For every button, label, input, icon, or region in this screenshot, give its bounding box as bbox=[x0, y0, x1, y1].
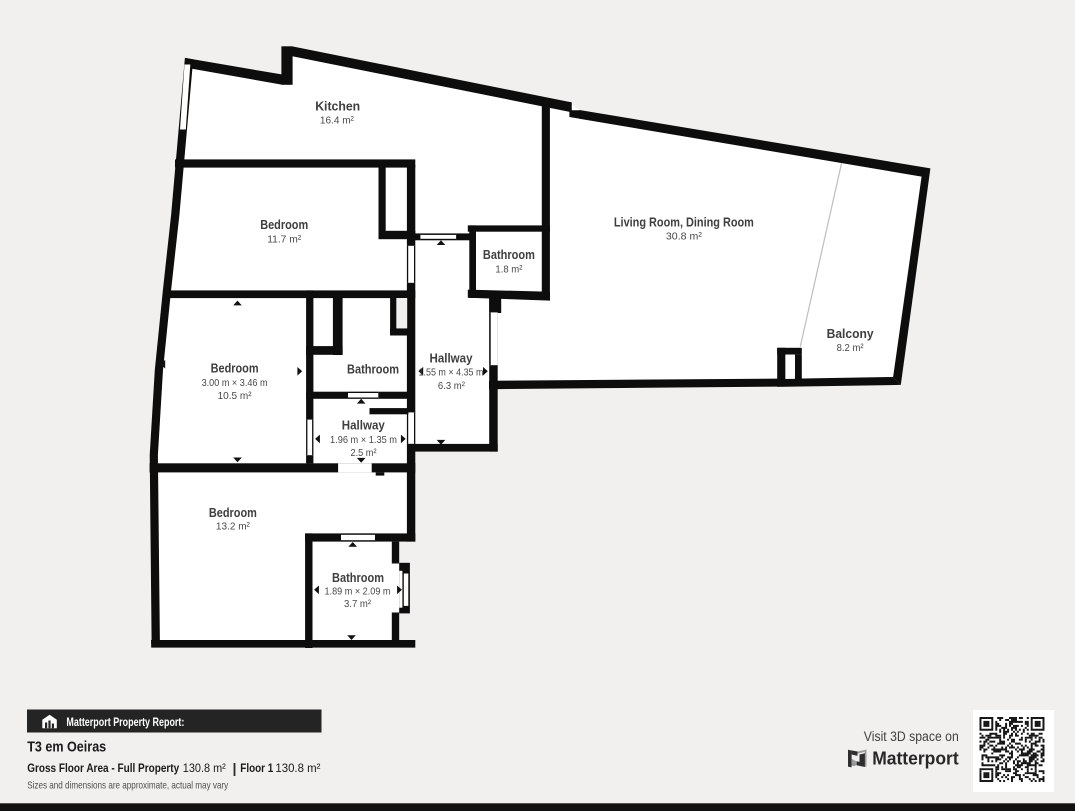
svg-text:1.8 m²: 1.8 m² bbox=[495, 264, 522, 276]
svg-text:2.5 m²: 2.5 m² bbox=[351, 447, 377, 459]
svg-text:Matterport: Matterport bbox=[872, 747, 959, 768]
svg-text:Bathroom: Bathroom bbox=[347, 362, 399, 376]
svg-text:13.2 m²: 13.2 m² bbox=[216, 521, 250, 533]
svg-text:T3 em Oeiras: T3 em Oeiras bbox=[27, 740, 106, 756]
svg-text:Kitchen: Kitchen bbox=[315, 100, 360, 114]
svg-text:Gross Floor Area - Full Proper: Gross Floor Area - Full Property bbox=[27, 761, 179, 775]
svg-text:3.00 m × 3.46 m: 3.00 m × 3.46 m bbox=[202, 377, 268, 389]
svg-text:Bedroom: Bedroom bbox=[260, 218, 308, 232]
svg-text:3.7 m²: 3.7 m² bbox=[344, 598, 371, 610]
svg-text:1.96 m × 1.35 m: 1.96 m × 1.35 m bbox=[330, 434, 397, 446]
svg-text:16.4 m²: 16.4 m² bbox=[320, 115, 354, 127]
svg-text:Visit 3D space on: Visit 3D space on bbox=[864, 729, 959, 744]
svg-text:30.8 m²: 30.8 m² bbox=[666, 231, 702, 243]
svg-text:130.8 m²: 130.8 m² bbox=[275, 761, 320, 775]
svg-text:Balcony: Balcony bbox=[827, 327, 874, 341]
svg-text:Sizes and dimensions are appro: Sizes and dimensions are approximate, ac… bbox=[27, 780, 229, 791]
svg-text:Bathroom: Bathroom bbox=[483, 248, 535, 262]
svg-text:Matterport Property Report:: Matterport Property Report: bbox=[66, 715, 184, 729]
svg-text:130.8 m²: 130.8 m² bbox=[183, 761, 226, 775]
svg-text:Floor 1: Floor 1 bbox=[240, 761, 273, 775]
svg-text:6.3 m²: 6.3 m² bbox=[438, 380, 465, 392]
svg-text:Hallway: Hallway bbox=[342, 419, 385, 433]
svg-text:Bathroom: Bathroom bbox=[332, 571, 384, 585]
svg-text:Hallway: Hallway bbox=[430, 351, 473, 365]
svg-text:11.7 m²: 11.7 m² bbox=[267, 234, 301, 246]
svg-text:Living Room, Dining Room: Living Room, Dining Room bbox=[614, 216, 754, 230]
svg-text:Bedroom: Bedroom bbox=[209, 506, 257, 520]
svg-text:8.2 m²: 8.2 m² bbox=[837, 342, 864, 354]
svg-text:Bedroom: Bedroom bbox=[211, 361, 259, 375]
svg-text:10.5 m²: 10.5 m² bbox=[218, 390, 252, 402]
svg-text:1.89 m × 2.09 m: 1.89 m × 2.09 m bbox=[325, 586, 391, 598]
svg-text:1.55 m × 4.35 m: 1.55 m × 4.35 m bbox=[419, 367, 484, 379]
